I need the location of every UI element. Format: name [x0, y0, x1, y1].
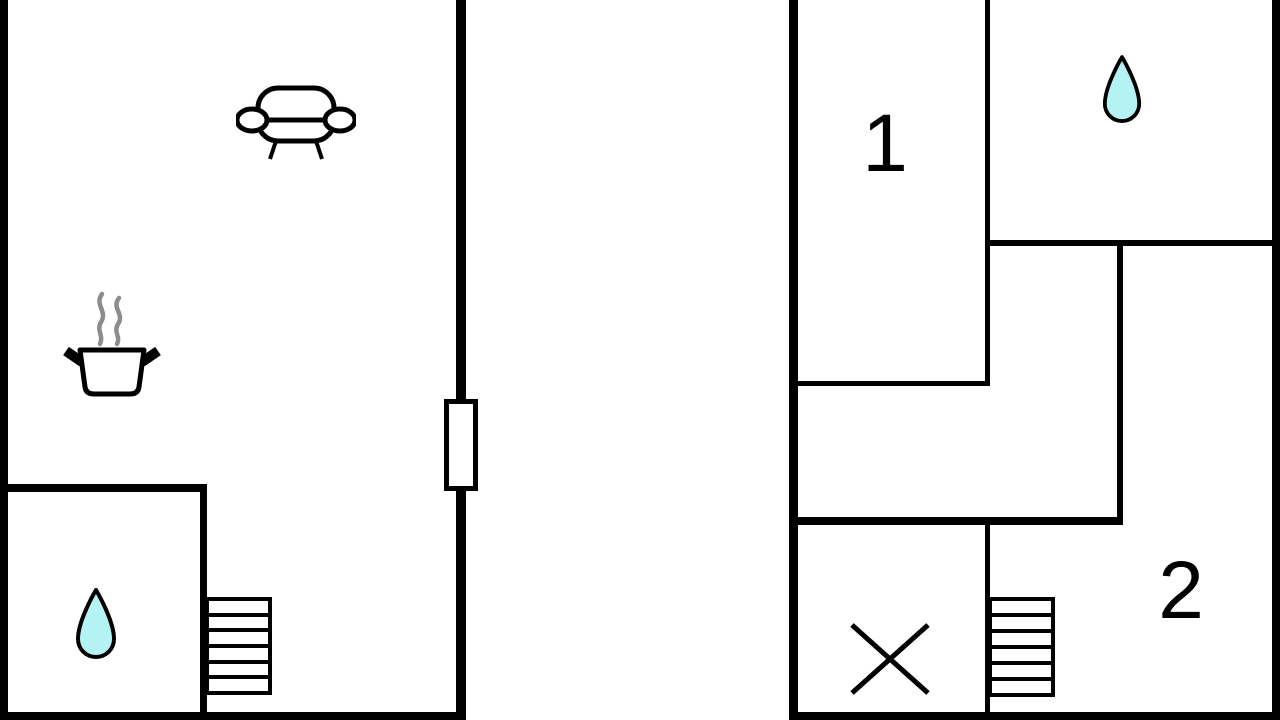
stair-tread — [209, 613, 268, 629]
water-drop-icon — [74, 587, 118, 663]
sofa-icon — [236, 84, 356, 164]
hall-bottom-wall — [789, 517, 1123, 525]
right-unit-left-wall — [789, 0, 798, 720]
left-outer-wall — [0, 0, 8, 720]
stair-tread — [209, 644, 268, 660]
steam-line — [99, 294, 103, 344]
bathroom-top-wall — [0, 484, 207, 492]
stair-tread — [992, 645, 1051, 661]
water-drop-icon — [1101, 52, 1143, 129]
cooking-pot-icon — [62, 288, 162, 398]
stairs-icon — [205, 597, 272, 695]
stair-tread — [992, 677, 1051, 693]
room1-right-wall — [985, 0, 990, 386]
cross-icon — [845, 618, 935, 700]
right-bathroom-bottom-wall — [985, 240, 1280, 246]
stair-tread — [992, 601, 1051, 613]
stair-tread — [209, 628, 268, 644]
right-outer-wall — [1272, 0, 1280, 720]
floorplan-canvas: 1 2 — [0, 0, 1280, 720]
stair-tread — [992, 661, 1051, 677]
room1-bottom-wall — [789, 381, 990, 386]
center-divider-wall — [456, 0, 466, 720]
steam-line — [116, 298, 120, 344]
door-icon — [444, 399, 478, 491]
stair-tread — [992, 629, 1051, 645]
stairs-icon — [988, 597, 1055, 697]
left-unit-bottom-wall — [0, 712, 466, 720]
room2-left-wall — [1117, 240, 1123, 525]
stair-tread — [209, 675, 268, 691]
stair-tread — [992, 613, 1051, 629]
stair-tread — [209, 660, 268, 676]
right-unit-bottom-wall — [789, 712, 1280, 720]
room1-label: 1 — [830, 99, 940, 189]
stair-tread — [209, 601, 268, 613]
room2-label: 2 — [1126, 546, 1236, 636]
